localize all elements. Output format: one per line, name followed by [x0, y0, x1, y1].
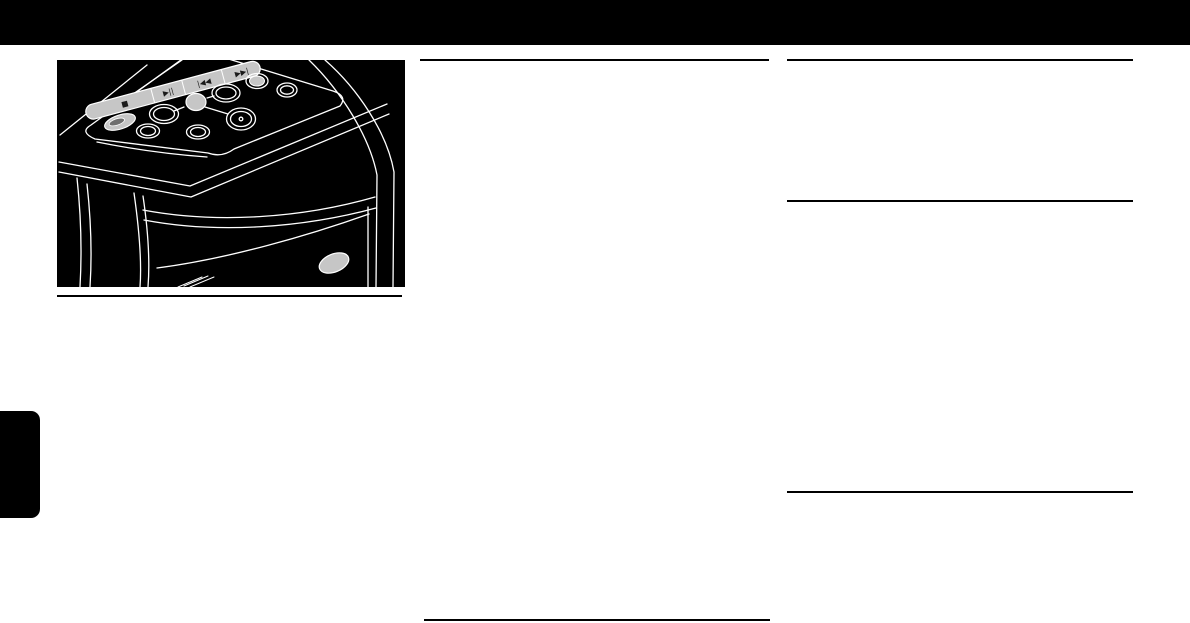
- right-column-middle-rule: [787, 200, 1133, 202]
- manual-page: ■ ▶|| |◀◀ ▶▶|: [0, 0, 1190, 623]
- middle-column-top-rule: [420, 59, 769, 61]
- standby-button-cap: [250, 76, 265, 86]
- figure-caption-rule: [57, 295, 402, 297]
- jog-center-button: [186, 94, 206, 111]
- right-column-top-rule: [787, 59, 1133, 61]
- section-edge-tab: [0, 411, 40, 518]
- device-illustration: ■ ▶|| |◀◀ ▶▶|: [57, 60, 405, 287]
- figure-background: [57, 60, 405, 287]
- middle-column-bottom-rule: [424, 619, 770, 621]
- header-bar: [0, 0, 1190, 45]
- device-illustration-canvas: ■ ▶|| |◀◀ ▶▶|: [57, 60, 405, 287]
- right-column-lower-rule: [787, 491, 1133, 493]
